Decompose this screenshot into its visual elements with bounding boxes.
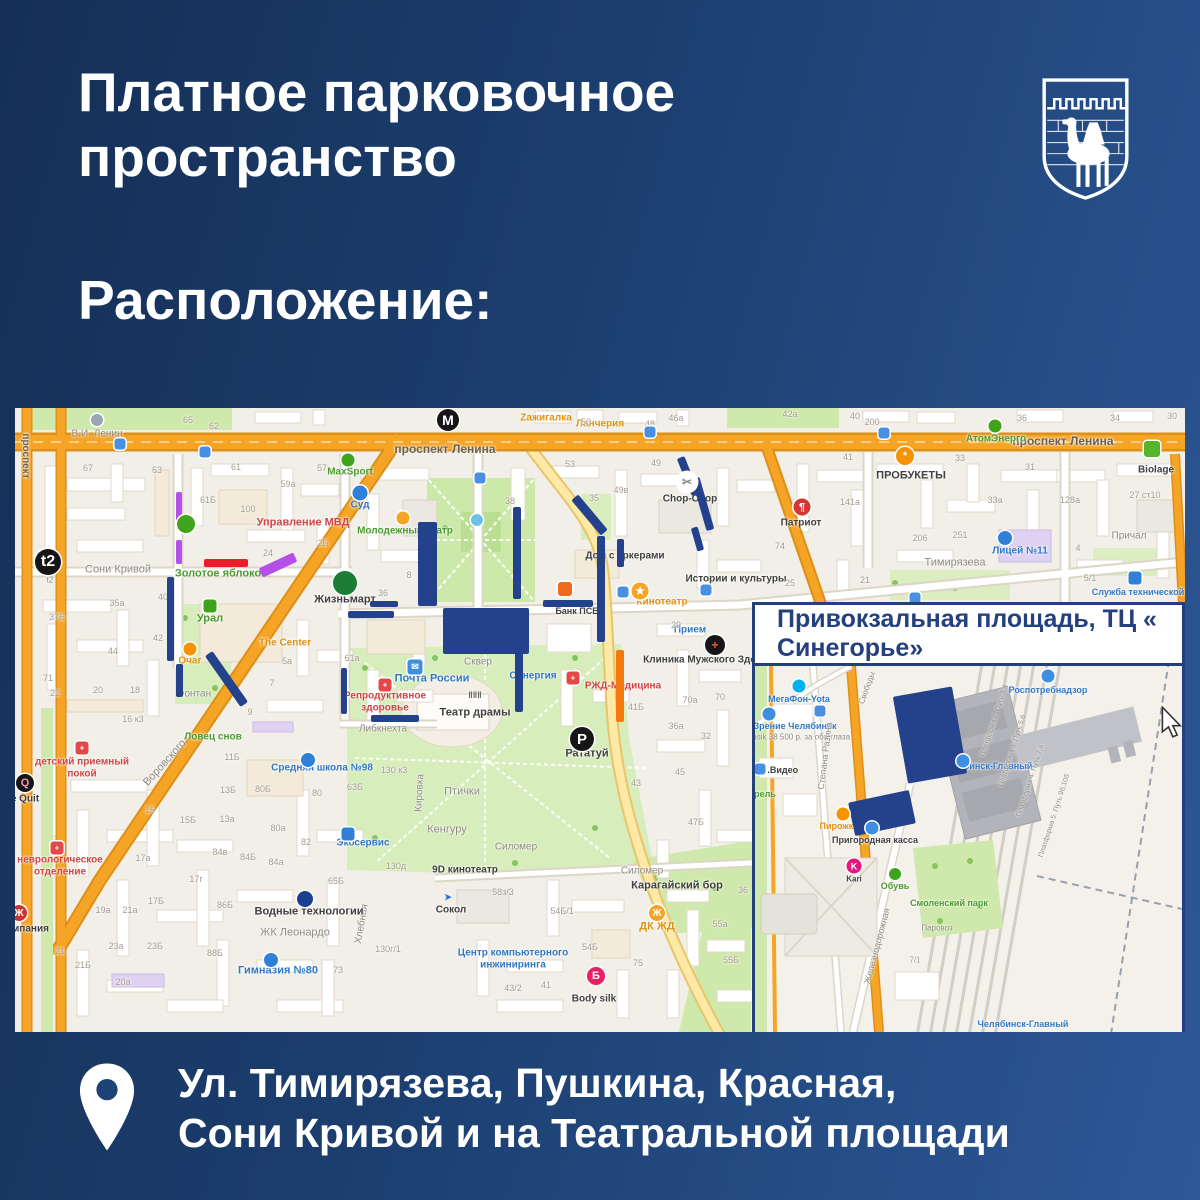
sokol-bird-icon: ➤	[441, 890, 455, 904]
obuv-icon	[889, 868, 901, 880]
title-line-1: Платное парковочное	[78, 60, 675, 125]
footer-streets: Ул. Тимирязева, Пушкина, Красная, Сони К…	[178, 1058, 1010, 1158]
transit-icon	[645, 427, 656, 438]
transit-icon	[115, 439, 126, 450]
atom-icon	[989, 420, 1002, 433]
ochag-icon	[184, 643, 197, 656]
theater-barcode-icon: ‖‖‖	[468, 688, 482, 702]
clinic-icon: +	[705, 635, 725, 655]
ratatouille-icon: Р	[570, 727, 594, 751]
poster-subtitle: Расположение:	[78, 268, 492, 332]
vodnye-icon	[297, 891, 313, 907]
metro-m-icon: M	[437, 409, 459, 431]
footer-line-2: Сони Кривой и на Театральной площади	[178, 1108, 1010, 1158]
medical-icon: +	[76, 742, 89, 755]
monument-icon	[91, 414, 103, 426]
ural-icon	[204, 600, 217, 613]
kari-icon: K	[847, 859, 862, 874]
transit-icon	[701, 585, 712, 596]
footer-line-1: Ул. Тимирязева, Пушкина, Красная,	[178, 1058, 1010, 1108]
inset-title: Привокзальная площадь, ТЦ « Синегорье»	[755, 605, 1182, 666]
theater-icon	[397, 512, 410, 525]
chopchop-icon: ✂	[677, 472, 697, 492]
city-map[interactable]: проспект Ленинапроспект ЛенинапроспектСо…	[15, 408, 1185, 1032]
cinema-icon: ★	[632, 583, 649, 600]
poster-title: Платное парковочное пространство	[78, 60, 675, 190]
inset-icons-layer: K	[755, 666, 1182, 1032]
inset-map[interactable]: МегаФон-YotaЗрение ЧелябинскLasik 38 500…	[755, 666, 1182, 1032]
chelyabinsk-coat-of-arms-icon	[1038, 74, 1133, 202]
inset-panel[interactable]: Привокзальная площадь, ТЦ « Синегорье»	[752, 602, 1185, 1032]
t2-icon: t2	[35, 549, 61, 575]
transit-icon	[815, 706, 826, 717]
company-icon: Ж	[15, 905, 27, 921]
zhiznmart-icon	[333, 571, 357, 595]
title-line-2: пространство	[78, 125, 675, 190]
school-icon	[301, 753, 315, 767]
bodysilk-icon: Б	[587, 967, 605, 985]
rospotreb-icon	[1042, 670, 1055, 683]
transit-icon	[200, 447, 211, 458]
medical-icon: +	[567, 672, 580, 685]
transit-icon	[755, 764, 766, 775]
transit-icon	[475, 473, 486, 484]
medical-icon: +	[379, 679, 392, 692]
court-icon	[353, 486, 368, 501]
service-icon	[1129, 572, 1142, 585]
school-icon	[264, 953, 278, 967]
station-icon	[957, 755, 970, 768]
biolage-icon	[1144, 441, 1160, 457]
mouse-cursor-icon	[1160, 706, 1182, 738]
kassa-icon	[866, 822, 879, 835]
quit-icon: Q	[16, 774, 34, 792]
medical-icon: +	[51, 842, 64, 855]
bank-psb-icon	[558, 582, 572, 596]
maxsport-icon	[342, 454, 355, 467]
transit-icon	[879, 428, 890, 439]
school-icon	[998, 531, 1012, 545]
camel-icon	[1062, 117, 1109, 187]
zrenie-icon	[763, 708, 776, 721]
dk-zhd-icon: Ж	[649, 905, 665, 921]
apple-store-icon	[177, 515, 195, 533]
megafon-icon	[793, 680, 806, 693]
patriot-icon: ¶	[794, 499, 811, 516]
fountain-icon	[471, 514, 483, 526]
probukety-icon: *	[896, 447, 914, 465]
eco-icon	[342, 828, 355, 841]
transit-icon	[618, 587, 629, 598]
location-pin-icon	[78, 1052, 136, 1164]
post-icon: ✉	[408, 660, 423, 675]
pirozhkof-icon	[837, 808, 850, 821]
